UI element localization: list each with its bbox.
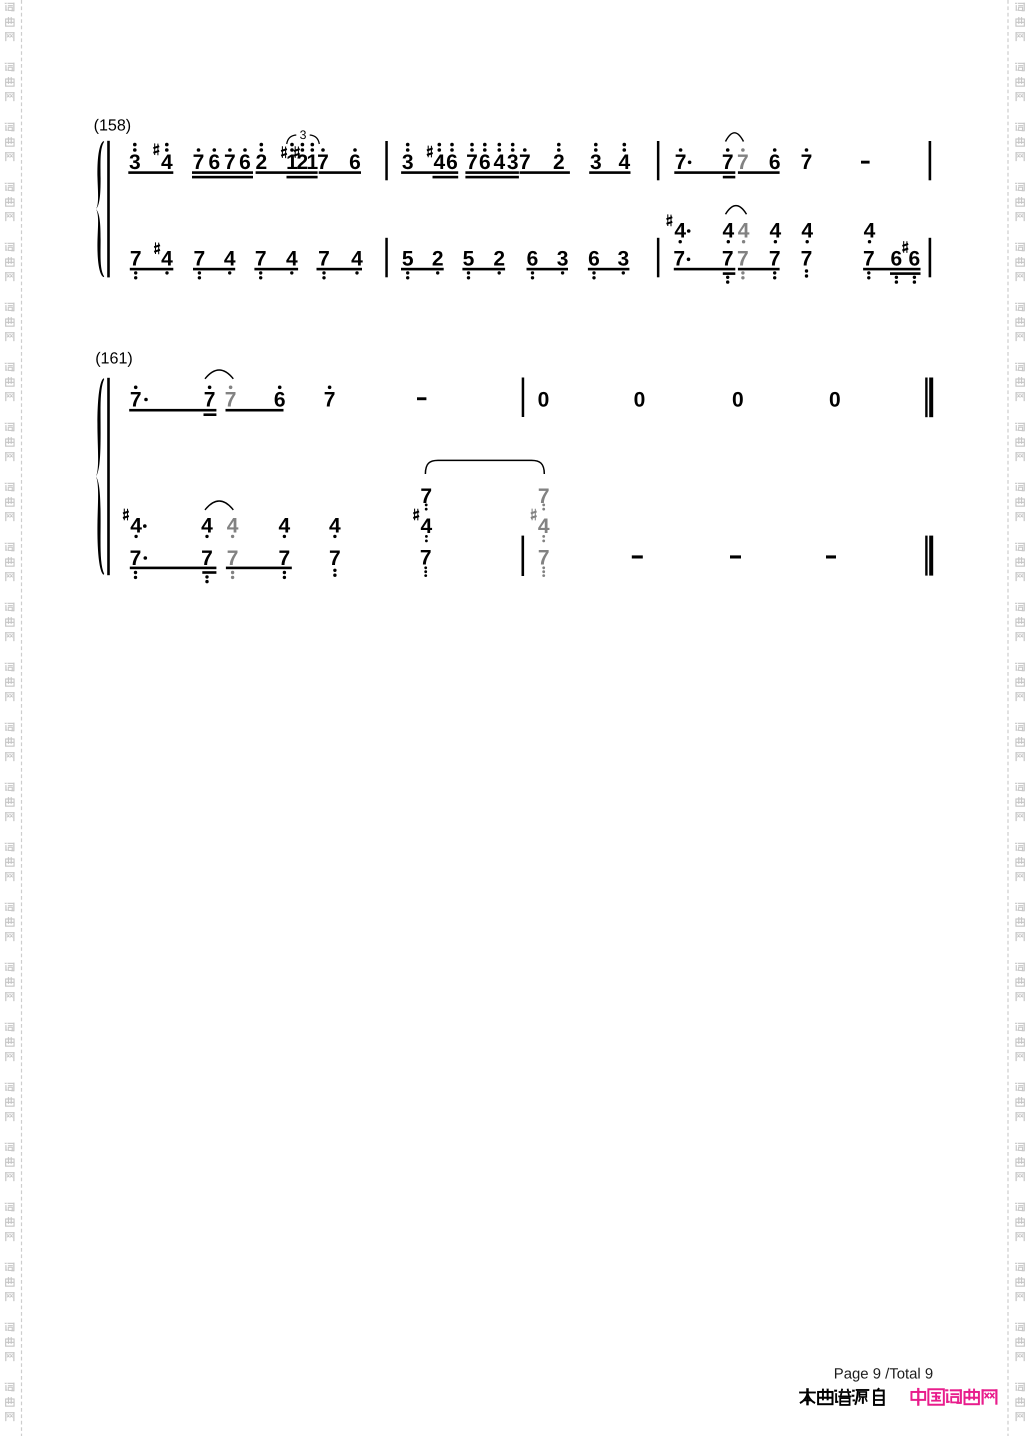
svg-text:2: 2 bbox=[553, 151, 565, 174]
svg-text:7: 7 bbox=[801, 248, 813, 271]
svg-text:4: 4 bbox=[538, 515, 550, 538]
svg-text:4: 4 bbox=[433, 151, 445, 174]
svg-text:(158): (158) bbox=[94, 117, 132, 135]
svg-text:7: 7 bbox=[224, 151, 236, 174]
svg-text:3: 3 bbox=[557, 248, 569, 271]
svg-text:6: 6 bbox=[239, 151, 251, 174]
svg-text:3: 3 bbox=[129, 151, 141, 174]
svg-text:7: 7 bbox=[225, 388, 237, 411]
svg-text:7: 7 bbox=[737, 151, 749, 174]
svg-text:6: 6 bbox=[446, 151, 458, 174]
svg-text:7: 7 bbox=[130, 248, 142, 271]
svg-text:6: 6 bbox=[479, 151, 491, 174]
svg-text:4: 4 bbox=[770, 220, 782, 243]
svg-text:4: 4 bbox=[738, 220, 750, 243]
svg-text:7: 7 bbox=[420, 547, 432, 570]
svg-text:3: 3 bbox=[402, 151, 414, 174]
svg-text:4: 4 bbox=[161, 248, 173, 271]
svg-text:7: 7 bbox=[769, 248, 781, 271]
svg-text:7: 7 bbox=[193, 151, 205, 174]
svg-text:2: 2 bbox=[493, 248, 505, 271]
svg-text:6: 6 bbox=[588, 248, 600, 271]
svg-text:3: 3 bbox=[590, 151, 602, 174]
svg-text:6: 6 bbox=[909, 248, 921, 271]
svg-text:7: 7 bbox=[466, 151, 478, 174]
svg-text:7: 7 bbox=[519, 151, 531, 174]
svg-text:6: 6 bbox=[769, 151, 781, 174]
svg-text:7: 7 bbox=[204, 388, 216, 411]
svg-text:4: 4 bbox=[351, 248, 363, 271]
svg-text:6: 6 bbox=[527, 248, 539, 271]
svg-text:3: 3 bbox=[300, 128, 307, 142]
svg-text:3: 3 bbox=[617, 248, 629, 271]
svg-text:7: 7 bbox=[201, 547, 213, 570]
svg-text:4: 4 bbox=[279, 515, 291, 538]
svg-text:7: 7 bbox=[130, 388, 142, 411]
svg-text:7: 7 bbox=[279, 547, 291, 570]
svg-text:4: 4 bbox=[201, 515, 213, 538]
svg-text:7: 7 bbox=[722, 151, 734, 174]
svg-text:4: 4 bbox=[224, 248, 236, 271]
svg-text:4: 4 bbox=[286, 248, 298, 271]
svg-text:0: 0 bbox=[829, 388, 841, 411]
svg-text:5: 5 bbox=[402, 248, 414, 271]
svg-text:4: 4 bbox=[801, 220, 813, 243]
svg-text:4: 4 bbox=[618, 151, 630, 174]
svg-text:2: 2 bbox=[255, 151, 267, 174]
svg-text:7: 7 bbox=[194, 248, 206, 271]
svg-text:4: 4 bbox=[674, 220, 686, 243]
svg-text:0: 0 bbox=[538, 388, 550, 411]
svg-text:4: 4 bbox=[493, 151, 505, 174]
svg-text:4: 4 bbox=[329, 515, 341, 538]
svg-text:6: 6 bbox=[274, 388, 286, 411]
svg-text:4: 4 bbox=[161, 151, 173, 174]
svg-text:7: 7 bbox=[318, 248, 330, 271]
svg-text:7: 7 bbox=[329, 547, 341, 570]
svg-text:Page 9 /Total 9: Page 9 /Total 9 bbox=[834, 1367, 933, 1383]
svg-text:5: 5 bbox=[463, 248, 475, 271]
svg-text:0: 0 bbox=[634, 388, 646, 411]
svg-text:4: 4 bbox=[130, 515, 142, 538]
svg-text:7: 7 bbox=[801, 151, 813, 174]
svg-text:7: 7 bbox=[227, 547, 239, 570]
svg-text:7: 7 bbox=[538, 547, 550, 570]
svg-text:7: 7 bbox=[722, 248, 734, 271]
svg-text:4: 4 bbox=[227, 515, 239, 538]
svg-text:7: 7 bbox=[317, 151, 329, 174]
svg-text:7: 7 bbox=[737, 248, 749, 271]
svg-text:(161): (161) bbox=[95, 349, 133, 367]
svg-text:6: 6 bbox=[891, 248, 903, 271]
svg-text:2: 2 bbox=[432, 248, 444, 271]
svg-text:7: 7 bbox=[324, 388, 336, 411]
svg-text:7: 7 bbox=[255, 248, 267, 271]
svg-text:7: 7 bbox=[675, 151, 687, 174]
svg-text:7: 7 bbox=[863, 248, 875, 271]
svg-text:4: 4 bbox=[722, 220, 734, 243]
svg-text:4: 4 bbox=[421, 515, 433, 538]
svg-text:6: 6 bbox=[349, 151, 361, 174]
svg-text:6: 6 bbox=[208, 151, 220, 174]
svg-text:7: 7 bbox=[130, 547, 142, 570]
svg-text:3: 3 bbox=[507, 151, 519, 174]
svg-text:0: 0 bbox=[732, 388, 744, 411]
svg-text:4: 4 bbox=[864, 220, 876, 243]
svg-text:7: 7 bbox=[673, 248, 685, 271]
